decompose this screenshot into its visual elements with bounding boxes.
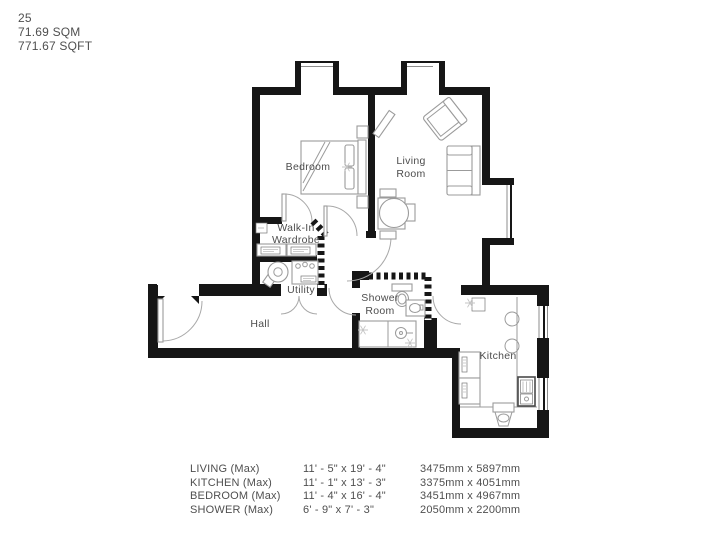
- dimension-room: KITCHEN (Max): [190, 477, 303, 491]
- bedroom-door: [324, 206, 357, 236]
- dimension-imperial: 11' - 4" x 16' - 4": [303, 490, 420, 504]
- entrance-door: [158, 299, 202, 342]
- living-room-label-line1: Living: [396, 155, 425, 167]
- dimension-room: LIVING (Max): [190, 463, 303, 477]
- kitchen-window-1: [539, 306, 548, 338]
- dimension-metric: 3451mm x 4967mm: [420, 490, 550, 504]
- kitchen-sink: [518, 377, 535, 406]
- hall-label: Hall: [250, 318, 269, 330]
- corner-tv: [373, 111, 395, 138]
- wardrobe-label-line2: Wardrobe: [272, 234, 320, 246]
- dimension-metric: 3475mm x 5897mm: [420, 463, 550, 477]
- dimension-metric: 3375mm x 4051mm: [420, 477, 550, 491]
- kitchen-label: Kitchen: [479, 350, 516, 362]
- dining-table: [378, 189, 415, 239]
- walls: [148, 61, 549, 438]
- table-row: SHOWER (Max) 6' - 9" x 7' - 3" 2050mm x …: [190, 504, 550, 518]
- oven: [493, 403, 514, 426]
- kitchen-window-2: [539, 378, 548, 410]
- kitchen-door: [433, 296, 461, 324]
- bedside-table-1: [357, 126, 368, 138]
- dimension-imperial: 11' - 5" x 19' - 4": [303, 463, 420, 477]
- utility-counter: [292, 261, 318, 284]
- shower-room-door: [329, 288, 356, 315]
- dimension-metric: 2050mm x 2200mm: [420, 504, 550, 518]
- washing-machine: [263, 262, 288, 287]
- bedroom-label: Bedroom: [286, 161, 331, 173]
- armchair: [422, 97, 467, 142]
- table-row: BEDROOM (Max) 11' - 4" x 16' - 4" 3451mm…: [190, 490, 550, 504]
- wardrobe-door: [282, 194, 312, 222]
- dimension-imperial: 11' - 1" x 13' - 3": [303, 477, 420, 491]
- tall-units: [459, 352, 480, 404]
- dimensions-table: LIVING (Max) 11' - 5" x 19' - 4" 3475mm …: [190, 463, 550, 517]
- table-row: LIVING (Max) 11' - 5" x 19' - 4" 3475mm …: [190, 463, 550, 477]
- bedside-table-2: [357, 196, 368, 208]
- shower-room-label-line2: Room: [365, 305, 394, 317]
- shower-room-label-line1: Shower: [361, 292, 399, 304]
- living-room-label-line2: Room: [396, 168, 425, 180]
- basin: [406, 300, 425, 316]
- sofa: [447, 146, 480, 195]
- floor-plan: Bedroom Living Room Walk-In Wardrobe Uti…: [0, 0, 720, 540]
- dimension-room: SHOWER (Max): [190, 504, 303, 518]
- dimension-imperial: 6' - 9" x 7' - 3": [303, 504, 420, 518]
- wardrobe-label-line1: Walk-In: [277, 222, 314, 234]
- side-bay-window: [507, 185, 512, 238]
- utility-double-doors: [281, 296, 317, 314]
- dimension-room: BEDROOM (Max): [190, 490, 303, 504]
- utility-label: Utility: [287, 284, 315, 296]
- floorplan-page: 25 71.69 SQM 771.67 SQFT: [0, 0, 720, 540]
- table-row: KITCHEN (Max) 11' - 1" x 13' - 3" 3375mm…: [190, 477, 550, 491]
